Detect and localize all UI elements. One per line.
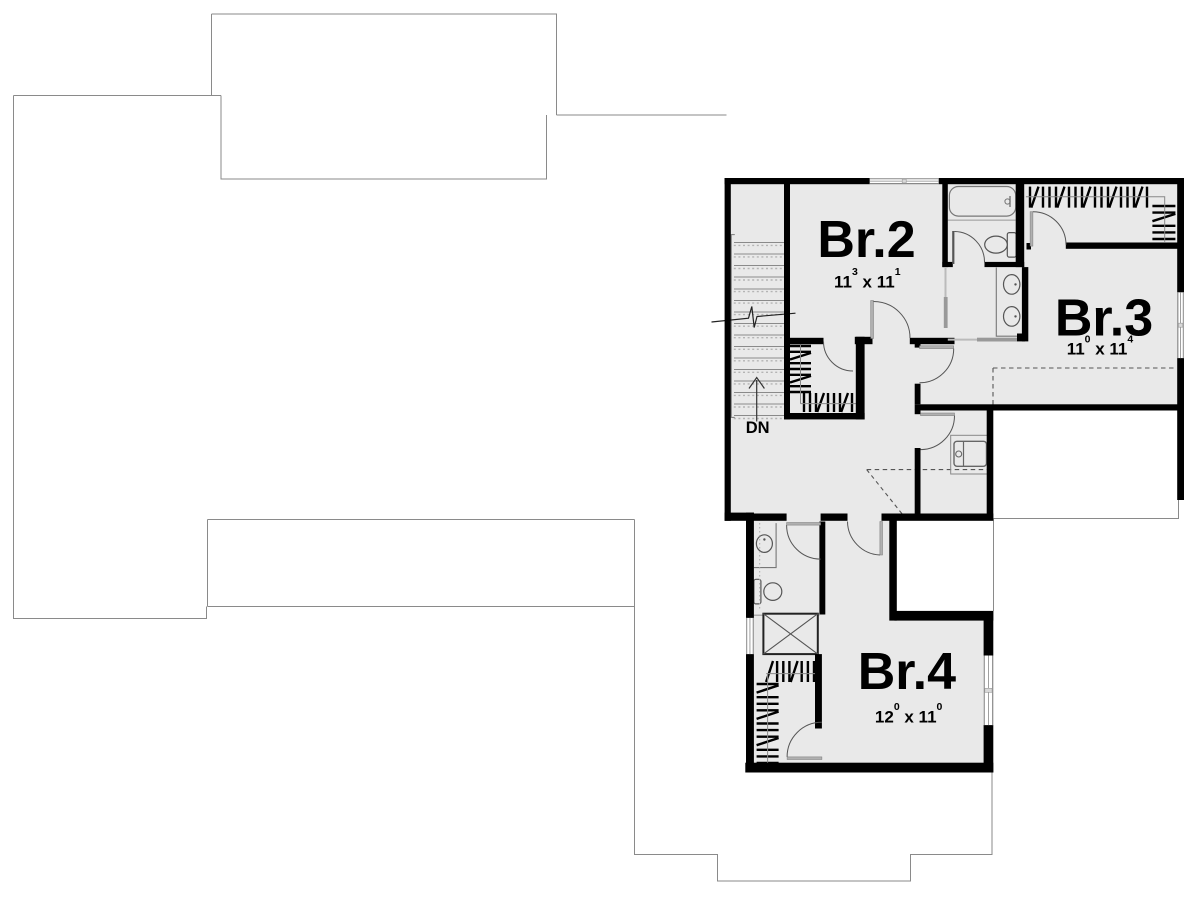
svg-text:Br.3: Br.3 bbox=[1055, 289, 1153, 347]
svg-text:Br.2: Br.2 bbox=[817, 211, 915, 269]
svg-text:Br.4: Br.4 bbox=[858, 643, 956, 701]
svg-text:DN: DN bbox=[746, 419, 770, 437]
